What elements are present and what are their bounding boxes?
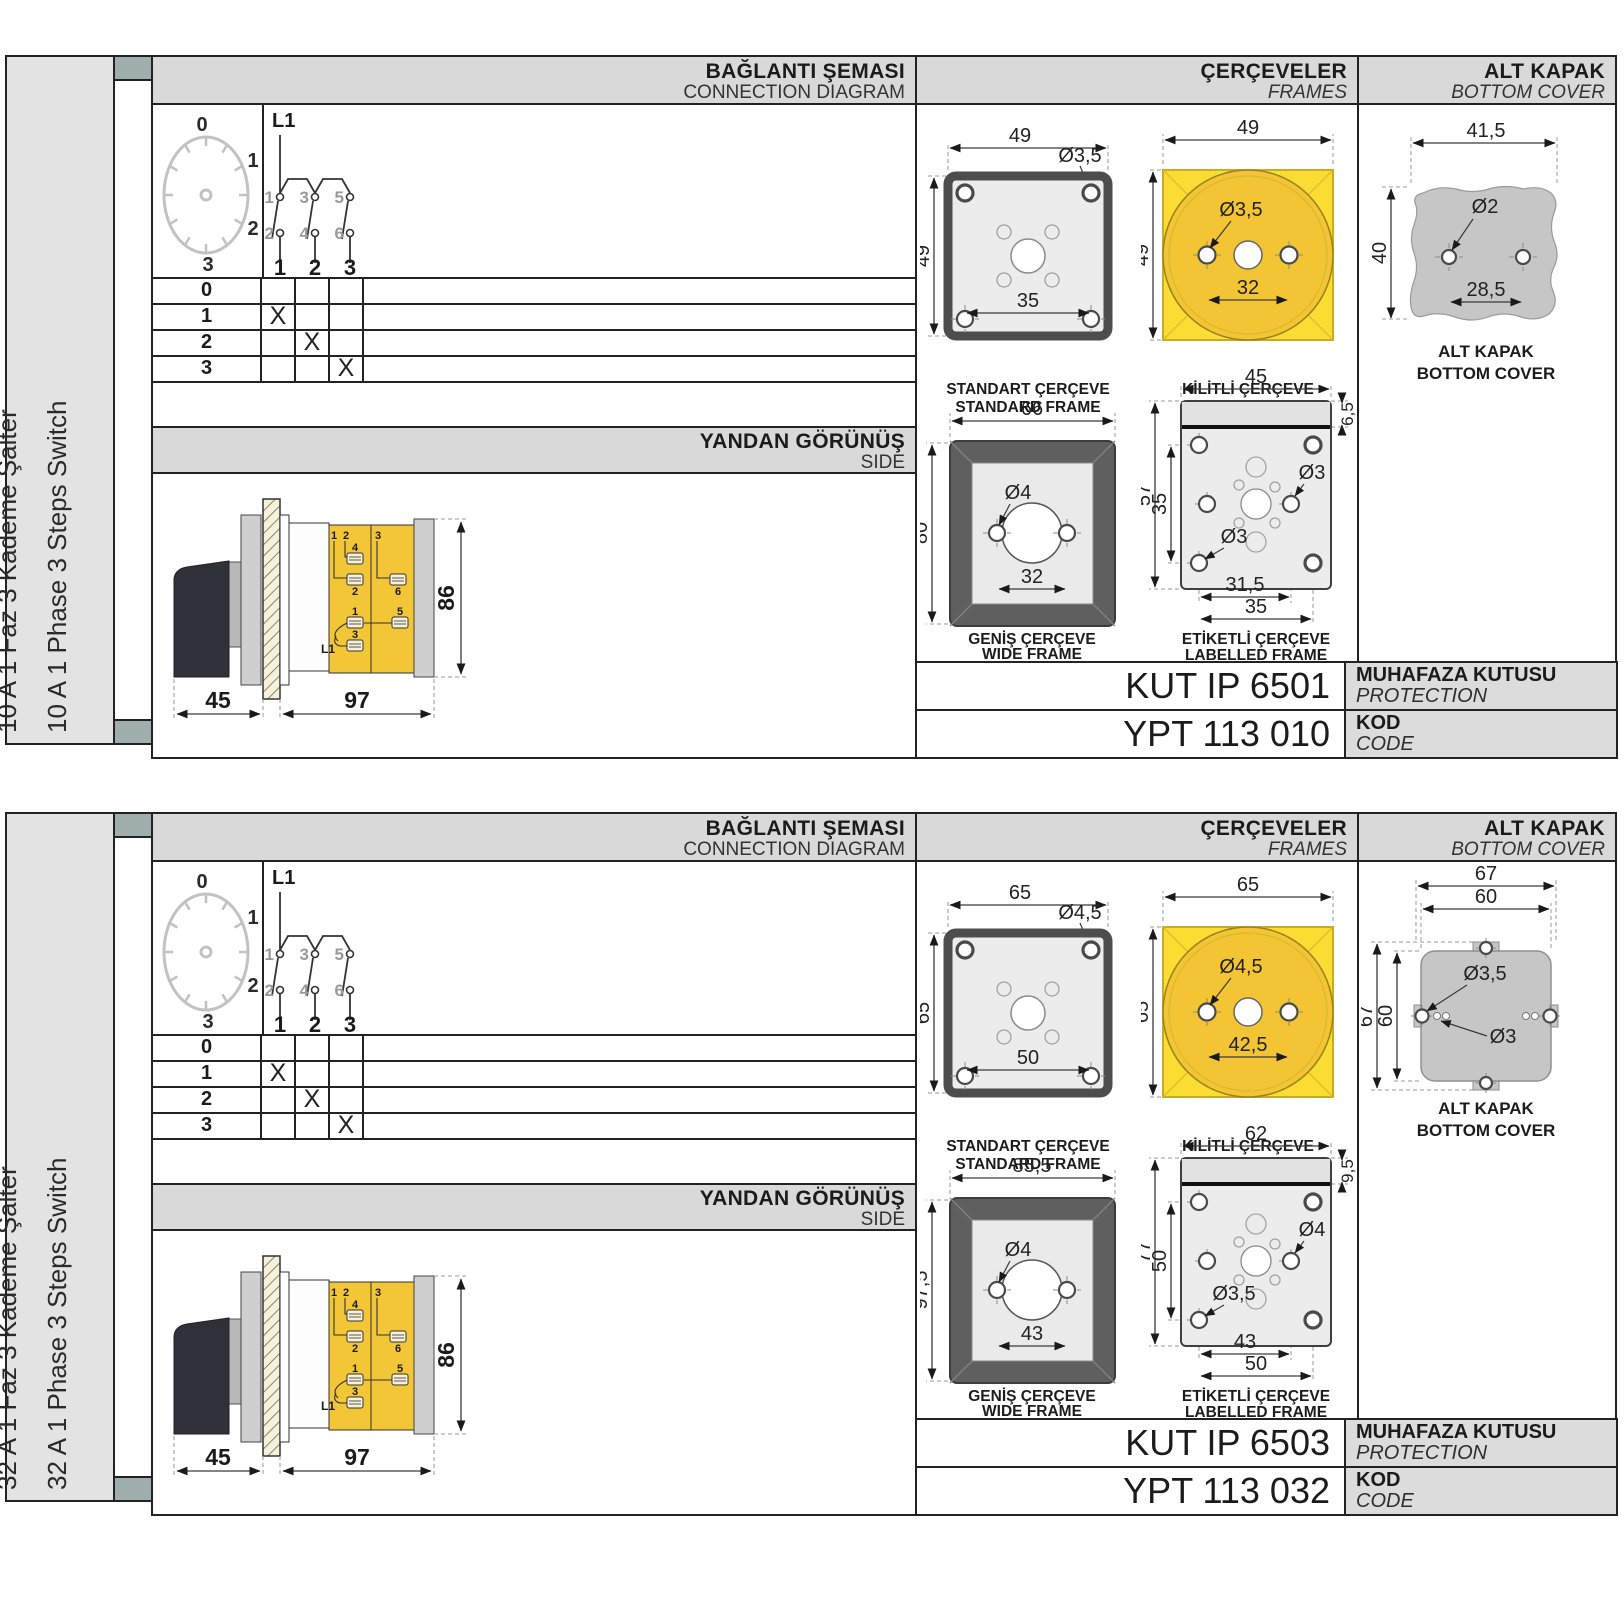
row-position-label: 1 (153, 1062, 262, 1086)
dim-height: 49 (1141, 244, 1153, 266)
dim-width: 65 (1237, 874, 1259, 896)
switch-handle (174, 1318, 229, 1434)
wide-frame-drawing: 66 80 Ø4 32 GENİŞ ÇERÇEVE WIDE FRAME (920, 399, 1140, 661)
dim-height: 97,5 (920, 1271, 932, 1310)
header-title-en: BOTTOM COVER (1359, 840, 1605, 860)
header-title-en: CONNECTION DIAGRAM (153, 83, 905, 103)
code-label-tr: KOD (1356, 1469, 1616, 1491)
strip-marker-bottom (115, 1476, 151, 1500)
contact-mark (262, 1036, 296, 1060)
product-title-english: 10 A 1 Phase 3 Steps Switch (42, 401, 73, 733)
frames-header: ÇERÇEVELER FRAMES (915, 812, 1359, 862)
panels-container: 10 A 1 Faz 3 Kademe Şalter 10 A 1 Phase … (5, 55, 1617, 1569)
contact-mark (262, 357, 296, 381)
dim-width: 62 (1245, 1124, 1267, 1145)
dim-width: 49 (1237, 117, 1259, 139)
terminal-6: 6 (335, 224, 344, 243)
contact-mark (330, 1062, 364, 1086)
header-title-tr: BAĞLANTI ŞEMASI (153, 817, 905, 840)
product-title-english: 32 A 1 Phase 3 Steps Switch (42, 1158, 73, 1490)
row-spacer (364, 305, 915, 329)
contact-mark (296, 1036, 330, 1060)
contact-mark (330, 1088, 364, 1112)
pole-1-label: 1 (274, 1012, 286, 1034)
hole-diameter-mid: Ø4 (1299, 1219, 1326, 1241)
dim-height: 40 (1369, 242, 1391, 264)
frames-header: ÇERÇEVELER FRAMES (915, 55, 1359, 105)
terminal-label-5: 5 (397, 606, 403, 618)
enclosure-code: KUT IP 6501 (917, 663, 1344, 709)
pole-3-label: 3 (344, 1012, 356, 1034)
contact-mark (296, 305, 330, 329)
enclosure-label-tr: MUHAFAZA KUTUSU (1356, 1421, 1616, 1443)
product-title-turkish: 10 A 1 Faz 3 Kademe Şalter (0, 409, 23, 733)
tab-hole-diameter: Ø3,5 (1463, 963, 1506, 985)
pole-3-label: 3 (344, 255, 356, 277)
row-position-label: 3 (153, 357, 262, 381)
side-view-drawing-area: 1 2 3 4 2 6 1 5 3 L1 86 45 97 (161, 1234, 491, 1509)
enclosure-code: KUT IP 6503 (917, 1420, 1344, 1466)
contact-mark (262, 1114, 296, 1138)
frames-section: 65 Ø4,5 65 50 STANDART ÇERÇEVE STANDARD … (915, 860, 1359, 1420)
bottom-cover-drawing: 41,5 40 Ø2 28,5 ALT KAPAK BOTTOM COVER (1361, 109, 1616, 419)
strip-marker-top (115, 57, 151, 81)
terminal-label-2: 2 (352, 586, 358, 598)
side-view-drawing: 1 2 3 4 2 6 1 5 3 L1 86 45 97 (161, 477, 491, 747)
strip-marker-bottom (115, 719, 151, 743)
enclosure-code-label: MUHAFAZA KUTUSU PROTECTION ENCLOSURE (1344, 1420, 1616, 1466)
terminal-label-4: 4 (352, 1299, 359, 1311)
phase-label: L1 (272, 110, 295, 132)
terminal-label-2: 2 (352, 1343, 358, 1355)
product-code-row: YPT 113 032 KOD CODE (915, 1466, 1618, 1516)
dial-position-3: 3 (202, 254, 213, 276)
hole-diameter-mid: Ø3 (1299, 462, 1326, 484)
terminal-2: 2 (265, 224, 274, 243)
dim-front: 45 (205, 1444, 231, 1470)
mounting-panel-hatch (263, 499, 280, 699)
row-spacer (364, 1088, 915, 1112)
enclosure-code-row: KUT IP 6503 MUHAFAZA KUTUSU PROTECTION E… (915, 1418, 1618, 1468)
header-title-en: BOTTOM COVER (1359, 83, 1605, 103)
connection-diagram-section: 0 1 2 3 L1 1 3 5 2 4 6 1 2 (151, 860, 917, 1516)
side-view-drawing: 1 2 3 4 2 6 1 5 3 L1 86 45 97 (161, 1234, 491, 1504)
contact-mark (296, 1062, 330, 1086)
terminal-label-1: 1 (352, 606, 358, 618)
switching-table: 0 1 X 2 X 3 (153, 277, 915, 383)
contact-mark: X (330, 1114, 364, 1138)
phase-label-l1: L1 (321, 642, 335, 656)
side-title-en: SIDE (153, 453, 905, 473)
dim-hole-spacing: 43 (1021, 1323, 1043, 1345)
product-code-label: KOD CODE (1344, 1468, 1616, 1514)
mounting-panel-hatch (263, 1256, 280, 1456)
caption-en: LABELLED FRAME (1185, 647, 1327, 661)
dim-holes-outer: 35 (1245, 596, 1267, 618)
terminal-label-3: 3 (352, 629, 358, 641)
row-spacer (364, 1062, 915, 1086)
dim-hole-spacing: 32 (1237, 277, 1259, 299)
terminal-1: 1 (265, 945, 274, 964)
code-label-tr: KOD (1356, 712, 1616, 734)
table-row: 1 X (153, 1060, 915, 1086)
terminal-1: 1 (265, 188, 274, 207)
contact-mark (296, 279, 330, 303)
standard-frame-drawing: 49 Ø3,5 49 35 STANDART ÇERÇEVE STANDARD … (920, 108, 1140, 418)
row-position-label: 2 (153, 331, 262, 355)
contact-mark (330, 1036, 364, 1060)
header-title-tr: ALT KAPAK (1359, 60, 1605, 83)
enclosure-code-row: KUT IP 6501 MUHAFAZA KUTUSU PROTECTION E… (915, 661, 1618, 711)
terminal-label-3: 3 (352, 1386, 358, 1398)
dim-body: 97 (344, 687, 370, 713)
hole-diameter-corner: Ø3 (1221, 526, 1248, 548)
dot-hole-diameter: Ø3 (1490, 1026, 1517, 1048)
table-row: 2 X (153, 1086, 915, 1112)
caption-en: LABELLED FRAME (1185, 1404, 1327, 1418)
contact-mark: X (262, 1062, 296, 1086)
dim-height: 86 (433, 1342, 459, 1368)
dim-body: 97 (344, 1444, 370, 1470)
cover-caption-tr: ALT KAPAK (1438, 1099, 1534, 1118)
caption-tr: ETİKETLİ ÇERÇEVE (1182, 631, 1330, 648)
wire-label-2: 2 (343, 530, 349, 542)
dim-hole-spacing: 42,5 (1229, 1034, 1268, 1056)
dial-position-1: 1 (247, 150, 258, 172)
hole-diameter-label: Ø4 (1005, 482, 1032, 504)
table-row: 2 X (153, 329, 915, 355)
dim-inner-height: 50 (1149, 1250, 1171, 1272)
hole-diameter-label: Ø3,5 (1219, 199, 1262, 221)
product-code: YPT 113 032 (917, 1468, 1344, 1514)
wire-label-2: 2 (343, 1287, 349, 1299)
contact-mark (330, 279, 364, 303)
dial-position-3: 3 (202, 1011, 213, 1033)
row-position-label: 3 (153, 1114, 262, 1138)
dim-width-outer: 67 (1475, 866, 1497, 885)
labelled-frame-drawing: 45 6,5 57 35 Ø3 Ø3 (1141, 367, 1356, 661)
pole-2-label: 2 (309, 255, 321, 277)
dim-holes-inner: 31,5 (1226, 574, 1265, 596)
product-code-row: YPT 113 010 KOD CODE (915, 709, 1618, 759)
terminal-4: 4 (300, 224, 310, 243)
terminal-3: 3 (300, 945, 309, 964)
hole-diameter-label: Ø2 (1472, 196, 1499, 218)
header-title-en: CONNECTION DIAGRAM (153, 840, 905, 860)
row-spacer (364, 331, 915, 355)
bottom-cover-header: ALT KAPAK BOTTOM COVER (1357, 55, 1617, 105)
dim-label-strip: 9,5 (1338, 1159, 1356, 1183)
hole-diameter-label: Ø3,5 (1058, 145, 1101, 167)
wire-label-1: 1 (331, 1287, 337, 1299)
header-title-tr: ÇERÇEVELER (917, 60, 1347, 83)
dim-height: 49 (920, 245, 934, 267)
dial-position-0: 0 (196, 871, 207, 893)
caption-tr: STANDART ÇERÇEVE (946, 381, 1109, 398)
row-spacer (364, 1036, 915, 1060)
circuit-cell: L1 1 3 5 2 4 6 1 2 3 (264, 862, 914, 1034)
header-title-tr: ÇERÇEVELER (917, 817, 1347, 840)
dim-height-inner: 60 (1375, 1005, 1397, 1027)
terminal-5: 5 (335, 188, 344, 207)
bottom-cover-drawing: 67 60 67 60 Ø3,5 Ø3 (1361, 866, 1616, 1176)
pole-1-label: 1 (274, 255, 286, 277)
caption-tr: ETİKETLİ ÇERÇEVE (1182, 1388, 1330, 1405)
dim-width: 66 (1021, 399, 1043, 420)
terminal-6: 6 (335, 981, 344, 1000)
wire-label-1: 1 (331, 530, 337, 542)
connection-diagram-section: 0 1 2 3 L1 1 3 5 2 4 6 1 2 (151, 103, 917, 759)
dim-label-strip: 6,5 (1338, 402, 1356, 426)
contact-circuit-diagram: L1 1 3 5 2 4 6 1 2 3 (264, 105, 914, 277)
code-label-en: CODE (1356, 734, 1616, 755)
table-row: 3 X (153, 1112, 915, 1138)
row-spacer (364, 279, 915, 303)
contact-mark: X (296, 1088, 330, 1112)
dim-width: 49 (1009, 125, 1031, 147)
dim-width: 41,5 (1467, 120, 1506, 142)
side-title-tr: YANDAN GÖRÜNÜŞ (153, 1187, 905, 1210)
wide-frame-drawing: 85,5 97,5 Ø4 43 GENİŞ ÇERÇEVE WIDE FRAME (920, 1156, 1140, 1418)
contact-mark: X (330, 357, 364, 381)
connection-diagram-header: BAĞLANTI ŞEMASI CONNECTION DIAGRAM (151, 812, 917, 862)
row-position-label: 0 (153, 279, 262, 303)
phase-label: L1 (272, 867, 295, 889)
dim-width: 65 (1009, 882, 1031, 904)
terminal-label-1: 1 (352, 1363, 358, 1375)
hole-diameter-corner: Ø3,5 (1212, 1283, 1255, 1305)
contact-mark (262, 331, 296, 355)
side-view-header: YANDAN GÖRÜNÜŞ SIDE (153, 1183, 915, 1231)
hole-diameter-label: Ø4,5 (1058, 902, 1101, 924)
dial-position-2: 2 (247, 218, 258, 240)
pole-2-label: 2 (309, 1012, 321, 1034)
sidebar: 10 A 1 Faz 3 Kademe Şalter 10 A 1 Phase … (5, 55, 115, 745)
switch-handle (174, 561, 229, 677)
dim-width: 45 (1245, 367, 1267, 388)
catalog-page: 10 A 1 Faz 3 Kademe Şalter 10 A 1 Phase … (0, 0, 1623, 1623)
frames-section: 49 Ø3,5 49 35 STANDART ÇERÇEVE STANDARD … (915, 103, 1359, 663)
strip-marker-top (115, 814, 151, 838)
caption-en: WIDE FRAME (982, 1403, 1082, 1418)
dim-front: 45 (205, 687, 231, 713)
hole-diameter-label: Ø4,5 (1219, 956, 1262, 978)
product-code: YPT 113 010 (917, 711, 1344, 757)
side-view-header: YANDAN GÖRÜNÜŞ SIDE (153, 426, 915, 474)
binding-strip (113, 55, 153, 745)
table-row: 1 X (153, 303, 915, 329)
dim-hole-spacing: 28,5 (1467, 279, 1506, 301)
wire-label-3: 3 (375, 1287, 381, 1299)
dim-hole-spacing: 35 (1017, 290, 1039, 312)
terminal-5: 5 (335, 945, 344, 964)
row-position-label: 0 (153, 1036, 262, 1060)
code-label-en: CODE (1356, 1491, 1616, 1512)
table-row: 0 (153, 277, 915, 303)
bottom-cover-header: ALT KAPAK BOTTOM COVER (1357, 812, 1617, 862)
dim-hole-spacing: 32 (1021, 566, 1043, 588)
contact-mark (296, 357, 330, 381)
cover-caption-en: BOTTOM COVER (1417, 364, 1556, 383)
terminal-label-4: 4 (352, 542, 359, 554)
side-title-en: SIDE (153, 1210, 905, 1230)
sidebar: 32 A 1 Faz 3 Kademe Şalter 32 A 1 Phase … (5, 812, 115, 1502)
dim-holes-outer: 50 (1245, 1353, 1267, 1375)
side-view-drawing-area: 1 2 3 4 2 6 1 5 3 L1 86 45 97 (161, 477, 491, 752)
enclosure-code-label: MUHAFAZA KUTUSU PROTECTION ENCLOSURE (1344, 663, 1616, 709)
caption-en: WIDE FRAME (982, 646, 1082, 661)
table-row: 0 (153, 1034, 915, 1060)
bottom-cover-section: 41,5 40 Ø2 28,5 ALT KAPAK BOTTOM COVER (1357, 103, 1617, 663)
cover-caption-tr: ALT KAPAK (1438, 342, 1534, 361)
product-title-turkish: 32 A 1 Faz 3 Kademe Şalter (0, 1166, 23, 1490)
dim-width: 85,5 (1013, 1156, 1052, 1177)
enclosure-label-tr: MUHAFAZA KUTUSU (1356, 664, 1616, 686)
switching-table: 0 1 X 2 X 3 (153, 1034, 915, 1140)
product-panel: 10 A 1 Faz 3 Kademe Şalter 10 A 1 Phase … (5, 55, 1617, 759)
dim-height: 65 (1141, 1001, 1153, 1023)
labelled-frame-drawing: 62 9,5 77 50 Ø4 Ø3,5 (1141, 1124, 1356, 1418)
contact-mark (330, 331, 364, 355)
contact-mark (330, 305, 364, 329)
contact-mark (262, 279, 296, 303)
contact-mark (296, 1114, 330, 1138)
table-row: 3 X (153, 355, 915, 381)
standard-frame-drawing: 65 Ø4,5 65 50 STANDART ÇERÇEVE STANDARD … (920, 865, 1140, 1175)
row-spacer (364, 357, 915, 381)
hole-diameter-label: Ø4 (1005, 1239, 1032, 1261)
dim-height: 65 (920, 1002, 934, 1024)
contact-circuit-diagram: L1 1 3 5 2 4 6 1 2 3 (264, 862, 914, 1034)
header-title-tr: ALT KAPAK (1359, 817, 1605, 840)
dim-height: 86 (433, 585, 459, 611)
dim-inner-height: 35 (1149, 493, 1171, 515)
dim-holes-inner: 43 (1234, 1331, 1256, 1353)
header-title-en: FRAMES (917, 840, 1347, 860)
terminal-2: 2 (265, 981, 274, 1000)
phase-label-l1: L1 (321, 1399, 335, 1413)
switch-dial-diagram: 0 1 2 3 (153, 105, 264, 277)
dim-hole-spacing: 50 (1017, 1047, 1039, 1069)
terminal-label-5: 5 (397, 1363, 403, 1375)
cover-caption-en: BOTTOM COVER (1417, 1121, 1556, 1140)
row-position-label: 1 (153, 305, 262, 329)
dial-position-1: 1 (247, 907, 258, 929)
terminal-label-6: 6 (395, 1343, 401, 1355)
terminal-label-6: 6 (395, 586, 401, 598)
dial-position-2: 2 (247, 975, 258, 997)
switch-dial-diagram: 0 1 2 3 (153, 862, 264, 1034)
side-title-tr: YANDAN GÖRÜNÜŞ (153, 430, 905, 453)
dim-width-inner: 60 (1475, 886, 1497, 908)
terminal-4: 4 (300, 981, 310, 1000)
caption-tr: STANDART ÇERÇEVE (946, 1138, 1109, 1155)
contact-mark: X (262, 305, 296, 329)
header-title-en: FRAMES (917, 83, 1347, 103)
terminal-3: 3 (300, 188, 309, 207)
header-title-tr: BAĞLANTI ŞEMASI (153, 60, 905, 83)
product-code-label: KOD CODE (1344, 711, 1616, 757)
connection-diagram-header: BAĞLANTI ŞEMASI CONNECTION DIAGRAM (151, 55, 917, 105)
contact-mark: X (296, 331, 330, 355)
dim-height: 80 (920, 522, 932, 544)
dial-cell: 0 1 2 3 (153, 105, 264, 277)
contact-mark (262, 1088, 296, 1112)
product-panel: 32 A 1 Faz 3 Kademe Şalter 32 A 1 Phase … (5, 812, 1617, 1516)
wire-label-3: 3 (375, 530, 381, 542)
row-spacer (364, 1114, 915, 1138)
row-position-label: 2 (153, 1088, 262, 1112)
circuit-cell: L1 1 3 5 2 4 6 1 2 3 (264, 105, 914, 277)
dial-position-0: 0 (196, 114, 207, 136)
bottom-cover-section: ALT KAPAK BOTTOM COVER 67 60 67 60 (1357, 860, 1617, 1420)
binding-strip (113, 812, 153, 1502)
dial-cell: 0 1 2 3 (153, 862, 264, 1034)
